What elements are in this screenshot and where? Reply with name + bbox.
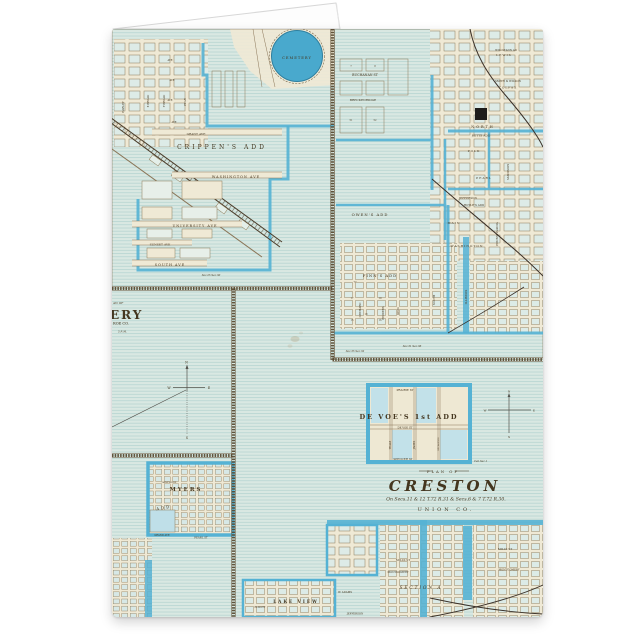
hampshire-label: HAMPSHIRE — [162, 481, 177, 484]
crippens-add-label: CRIPPEN'S ADD — [177, 144, 267, 151]
main-label: MAIN — [447, 221, 460, 225]
pennsylvania-label: PENNSYLVANIA — [495, 221, 499, 246]
teale-st-label: TEALE — [389, 441, 392, 450]
devoes-title: DE VOE'S 1st ADD — [359, 413, 458, 421]
compass2-e: E — [533, 409, 535, 413]
block-number: 16 — [378, 319, 382, 322]
block-number: 19 — [378, 297, 382, 300]
creston-open-block — [337, 140, 430, 200]
finns-add-label: FINN'S ADD — [363, 273, 397, 278]
breckenridge-label: BRECKENRIDGE — [350, 98, 376, 102]
sec-note-1: Sec.31 Sec.36 — [403, 344, 422, 348]
corner-blue-street — [145, 560, 152, 617]
block-number: 77 — [353, 281, 357, 284]
montgomery-label-2: MONTGOMERY — [498, 568, 519, 572]
avery-plan-of: AN OF — [112, 301, 123, 305]
block-number: 15 — [350, 319, 354, 322]
grand-ave-label: GRAND AVE — [154, 534, 170, 537]
smith-wilson-label: SMITH & WILSON — [495, 79, 522, 83]
block-number: 51 — [349, 119, 353, 122]
section-note-topleft: Sec.25 Sec.30 — [202, 273, 221, 277]
creston-title: CRESTON — [389, 477, 502, 495]
f-broad-st-label: F BROAD — [162, 95, 166, 108]
cen-sec-label: Cen.Sec.1 — [474, 459, 488, 463]
avery-county: ROE CO. — [113, 322, 129, 326]
king-label: KING — [396, 307, 400, 315]
card-front: CEMETERY — [112, 29, 543, 617]
retts-add-label: RETTS ADD — [472, 134, 491, 138]
lewis-label: LEWIS — [496, 53, 512, 57]
block-number: 18 — [364, 313, 368, 316]
pearl-label: PEARL — [476, 176, 492, 180]
owens-add-label: OWEN'S ADD — [352, 212, 389, 217]
avery-town-name: ERY — [112, 308, 143, 322]
washington-label: WASHINGTON — [450, 244, 483, 248]
blue-avenue-1 — [420, 520, 427, 617]
jefferson-label: JEFFERSON — [458, 196, 477, 200]
cemetery-label: CEMETERY — [282, 56, 312, 60]
lake-view-label: LAKE VIEW — [273, 599, 319, 604]
sycamore-st-label: SYCAMORE — [437, 437, 440, 451]
plan-of-label: PLAN OF — [427, 469, 459, 474]
grant-ave-label: GRANT AVE — [187, 132, 206, 136]
creston-southeast-grid — [470, 261, 543, 333]
section-a-label: SECTION A — [399, 585, 442, 590]
ave-label-2: AVE — [168, 79, 174, 82]
washington-ave-label: WASHINGTON AVE — [212, 175, 260, 179]
ave-label-3: AVE — [166, 99, 172, 102]
north-label: NORTH — [471, 125, 494, 129]
avery-meridian: 5 P. M. — [118, 330, 127, 334]
adams-label: W. ADAMS — [338, 590, 352, 594]
sunset-ave-label: SUNSET AVE — [150, 243, 171, 247]
pinders-label: PINDERS — [381, 306, 385, 319]
james-st-label: JAMES — [413, 440, 416, 450]
madison-label: MADISON — [506, 164, 510, 180]
prairie-st-label: PRAIRIE ST — [396, 388, 413, 392]
hoyles-add-label: HOYLE'S ADD — [464, 203, 485, 207]
antique-plat-map: CEMETERY — [112, 29, 543, 617]
sec-note-2: Sec.35 Sec.32 — [346, 349, 365, 353]
mills-st-label-1: MILLS ST — [396, 558, 410, 562]
colfax-label: COLFAX — [499, 86, 517, 90]
tall-blocks-plat — [327, 525, 377, 575]
compass2-n: N — [508, 390, 511, 394]
union-co-label: UNION CO. — [418, 507, 475, 513]
e-broad-st-label: E BROAD — [146, 95, 150, 108]
mills-st-label-2: MILLS ST — [498, 547, 512, 551]
harley-st-label: HARLEY — [121, 101, 125, 113]
compass-n: N — [185, 361, 188, 365]
orchard-label: ORCHARD — [358, 303, 362, 318]
montgomery-label-1: MONTGOMERY — [387, 570, 408, 574]
creston-sections: On Secs.11 & 12 T.72 R.31 & Secs.6 & 7 T… — [386, 497, 506, 503]
ave-label-1: AVE — [166, 59, 172, 62]
block-number: 17 — [350, 297, 354, 300]
polk-label: POLK — [468, 149, 481, 153]
university-ave-label: UNIVERSITY AVE — [172, 224, 217, 228]
compass-s: S — [186, 436, 188, 440]
buchanan-label: BUCHANAN ST — [352, 73, 379, 77]
blue-avenue-2 — [463, 526, 472, 600]
compass2-s: S — [508, 435, 510, 439]
ave-label-4: AVE — [170, 121, 176, 124]
south-label: SOUTH — [432, 294, 436, 305]
south-ave-label: SOUTH AVE — [155, 263, 185, 267]
greeting-card-product-mockup: CEMETERY — [0, 0, 644, 644]
card-back-wedge — [113, 3, 340, 29]
devoe-st-label: DE VOE ST — [398, 426, 413, 430]
elliott-label: ELLIOTT — [254, 606, 265, 609]
spencer-st-label: SPENCER ST — [393, 457, 412, 461]
illinois-street-band — [463, 237, 469, 333]
myers-label: MYERS — [170, 487, 203, 493]
jefferson-south-label: JEFFERSON — [346, 612, 364, 616]
fold-crease — [337, 4, 340, 29]
depot-building — [475, 108, 487, 120]
illinois-label: ILLINOIS — [464, 290, 468, 305]
block-number: 52 — [373, 119, 377, 122]
pear-st-label: PEAR — [183, 97, 187, 106]
willstann-label: WILLSTANN AD — [495, 48, 517, 52]
pearl-st-label: PEARL ST — [194, 536, 208, 540]
